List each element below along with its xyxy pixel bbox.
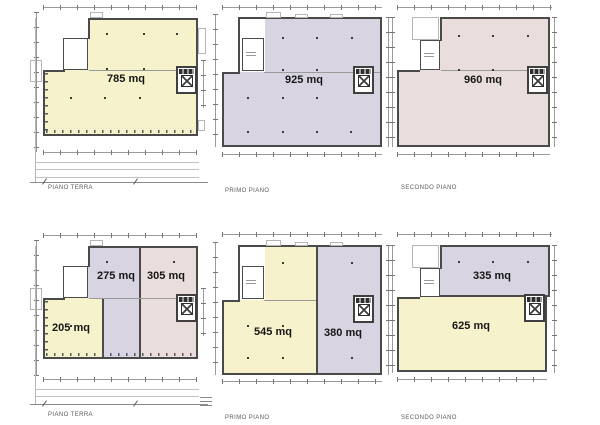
wall-segment: [238, 17, 382, 19]
wall-segment: [440, 245, 550, 247]
canopy: [330, 242, 343, 246]
unit-fill: [103, 298, 140, 359]
site-line: [200, 405, 212, 406]
dimension-line: [43, 152, 197, 153]
column-dot: [316, 97, 318, 99]
column-dot: [173, 261, 175, 263]
room-label-lines: [246, 280, 256, 285]
site-line: [35, 169, 199, 170]
dimension-line: [43, 7, 197, 8]
canopy: [266, 12, 281, 18]
room-label-lines: [424, 53, 434, 58]
site-line: [35, 396, 199, 397]
wall-segment: [397, 70, 420, 72]
column-dot: [247, 97, 249, 99]
unit-fill: [88, 18, 197, 70]
area-label: 785 mq: [96, 73, 156, 86]
column-dot: [176, 33, 178, 35]
dimension-line: [215, 14, 216, 147]
room-label-lines: [246, 52, 256, 57]
floor-caption: PIANO TERRA: [48, 185, 93, 191]
unit-fill: [265, 245, 317, 300]
stair-room: [63, 266, 88, 298]
floor-caption: SECONDO PIANO: [401, 415, 457, 421]
wall-segment: [380, 245, 382, 375]
dimension-line: [388, 17, 389, 147]
column-dot: [104, 97, 106, 99]
floor-caption: PRIMO PIANO: [225, 188, 269, 194]
dimension-line: [36, 240, 37, 376]
column-dot: [351, 262, 353, 264]
wall-segment: [88, 246, 198, 248]
column-dot: [458, 261, 460, 263]
wall-segment: [238, 17, 240, 74]
unit-divider: [139, 246, 141, 359]
wall-segment: [397, 145, 550, 147]
wall-segment: [43, 70, 65, 72]
dimension-line: [43, 235, 197, 236]
elevator-core: [176, 66, 197, 94]
column-dot: [106, 33, 108, 35]
elevator-core: [527, 66, 548, 94]
wall-segment: [440, 245, 442, 269]
column-dot: [351, 357, 353, 359]
site-line: [200, 397, 212, 398]
area-label: 335 mq: [462, 270, 522, 283]
column-dot: [282, 262, 284, 264]
room-label-lines: [424, 280, 434, 285]
area-label: 545 mq: [243, 326, 303, 339]
floor-plan-sheet: 785 mq PIANO TERRA 925 mq PRIMO PIANO: [0, 0, 600, 425]
wall-segment: [397, 297, 420, 299]
elevator-core: [524, 294, 545, 322]
canopy: [295, 242, 308, 246]
site-line: [35, 246, 36, 404]
area-label: 205 mq: [41, 322, 101, 335]
site-line: [35, 177, 199, 178]
unit-fill: [440, 17, 550, 70]
wall-segment: [380, 17, 382, 147]
column-dot: [143, 33, 145, 35]
column-dot: [458, 69, 460, 71]
elevator-shaft-icon: [181, 75, 193, 87]
wall-segment: [397, 297, 399, 372]
column-dot: [527, 261, 529, 263]
canopy: [90, 12, 103, 18]
wall-segment: [397, 370, 547, 372]
canopy: [295, 14, 308, 18]
column-dot: [527, 35, 529, 37]
column-dot: [350, 131, 352, 133]
roof-notch: [412, 17, 439, 40]
column-dot: [282, 37, 284, 39]
elevator-shaft-icon: [529, 303, 541, 315]
column-dot: [143, 68, 145, 70]
wall-segment: [222, 373, 382, 375]
column-dot: [492, 35, 494, 37]
column-dot: [247, 357, 249, 359]
column-dot: [70, 97, 72, 99]
elevator-core: [353, 66, 374, 94]
elevator-shaft-icon: [532, 75, 544, 87]
canopy: [330, 14, 343, 18]
balcony: [198, 120, 205, 131]
site-line: [35, 162, 199, 163]
wall-segment: [440, 17, 550, 19]
column-dot: [492, 261, 494, 263]
column-dot: [282, 69, 284, 71]
stair-room: [63, 38, 88, 70]
floor-caption: SECONDO PIANO: [401, 185, 457, 191]
column-dot: [282, 357, 284, 359]
unit-divider: [102, 298, 104, 359]
column-dot: [458, 35, 460, 37]
wall-segment: [545, 297, 547, 372]
dimension-line: [203, 60, 204, 108]
section-line: [30, 182, 208, 183]
wall-segment: [88, 246, 90, 267]
floor-caption: PIANO TERRA: [48, 412, 93, 418]
dimension-line: [222, 7, 382, 8]
dimension-line: [215, 242, 216, 375]
elevator-shaft-icon: [358, 75, 370, 87]
balcony: [198, 28, 206, 54]
wall-segment: [222, 145, 382, 147]
column-dot: [106, 261, 108, 263]
unit-divider: [316, 245, 318, 373]
section-line: [30, 404, 208, 405]
area-label: 380 mq: [313, 327, 373, 340]
window-ticks: [45, 73, 48, 133]
area-label: 625 mq: [441, 320, 501, 333]
area-label: 960 mq: [453, 74, 513, 87]
column-dot: [316, 69, 318, 71]
wall-segment: [397, 70, 399, 147]
unit-fill: [265, 17, 382, 72]
dimension-line: [397, 234, 552, 235]
site-line: [35, 18, 36, 182]
roof-notch: [412, 245, 439, 268]
dimension-line: [222, 381, 382, 382]
stair-hatch: [527, 297, 542, 302]
dimension-line: [392, 17, 393, 147]
canopy: [266, 240, 281, 246]
dimension-line: [222, 234, 382, 235]
stair-hatch: [356, 69, 371, 74]
site-line: [200, 401, 212, 402]
dimension-line: [397, 154, 550, 155]
site-line: [35, 389, 199, 390]
column-dot: [316, 131, 318, 133]
elevator-core: [353, 295, 374, 323]
elevator-shaft-icon: [181, 303, 193, 315]
wall-segment: [43, 134, 198, 136]
wall-segment: [440, 17, 442, 41]
dimension-line: [36, 12, 37, 152]
grid-line: [264, 300, 316, 301]
dimension-line: [397, 379, 547, 380]
dimension-line: [222, 154, 382, 155]
dimension-line: [392, 245, 393, 373]
wall-segment: [222, 72, 224, 147]
stair-hatch: [179, 69, 194, 74]
dimension-line: [43, 379, 197, 380]
wall-segment: [548, 245, 550, 297]
window-ticks: [46, 353, 194, 356]
column-dot: [351, 37, 353, 39]
elevator-shaft-icon: [358, 304, 370, 316]
wall-segment: [548, 17, 550, 147]
column-dot: [316, 37, 318, 39]
wall-segment: [238, 245, 240, 302]
wall-segment: [88, 18, 198, 20]
column-dot: [282, 131, 284, 133]
floor-caption: PRIMO PIANO: [225, 415, 269, 421]
elevator-core: [176, 294, 197, 322]
wall-segment: [88, 18, 90, 39]
window-ticks: [46, 130, 194, 133]
column-dot: [139, 97, 141, 99]
column-dot: [282, 97, 284, 99]
stair-hatch: [179, 297, 194, 302]
wall-segment: [238, 245, 382, 247]
area-label: 305 mq: [136, 270, 196, 283]
dimension-line: [203, 288, 204, 336]
area-label: 925 mq: [274, 74, 334, 87]
dimension-line: [388, 245, 389, 375]
wall-segment: [43, 357, 198, 359]
dimension-line: [554, 17, 555, 147]
wall-segment: [222, 300, 224, 373]
canopy: [90, 240, 103, 246]
stair-hatch: [356, 298, 371, 303]
dimension-line: [397, 7, 552, 8]
wall-segment: [43, 298, 65, 300]
dimension-line: [554, 245, 555, 373]
stair-hatch: [530, 69, 545, 74]
column-dot: [492, 69, 494, 71]
column-dot: [106, 68, 108, 70]
column-dot: [247, 131, 249, 133]
